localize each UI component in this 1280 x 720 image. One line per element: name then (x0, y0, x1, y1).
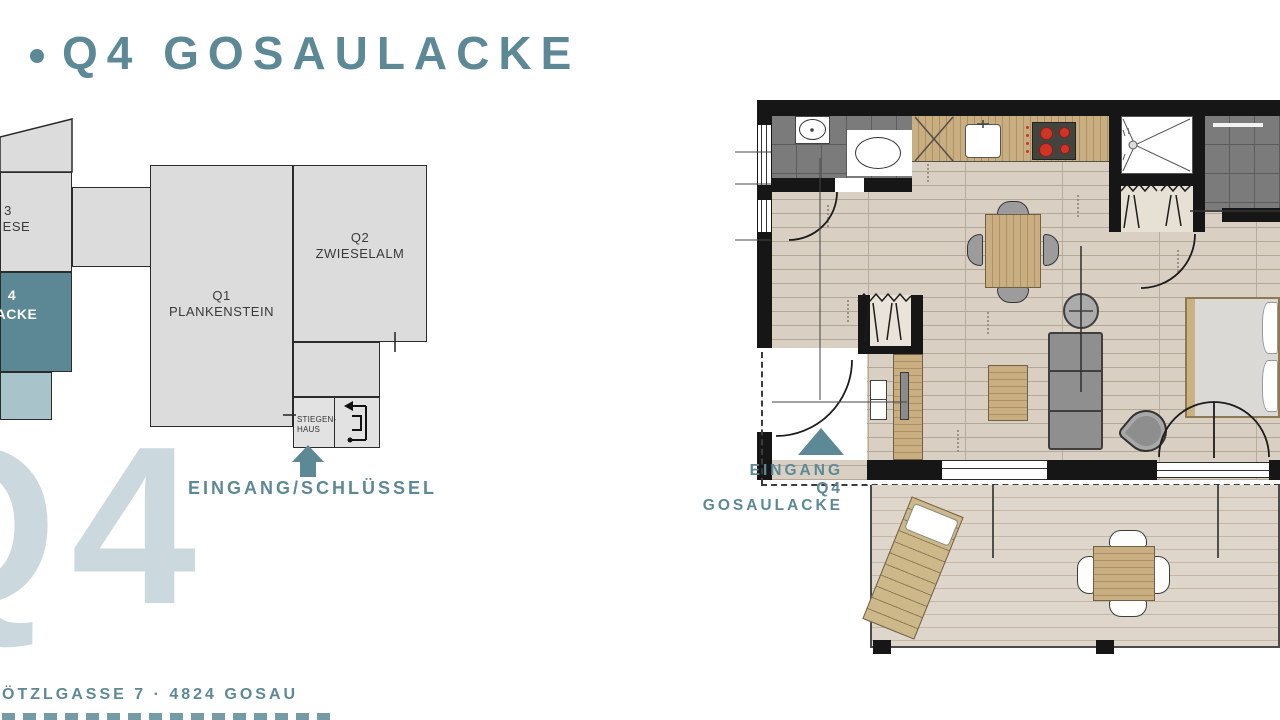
roof-support-lines (993, 484, 1218, 558)
plan-entrance-label: EINGANG Q4 GOSAULACKE (643, 462, 843, 515)
entry-door-arc (776, 360, 852, 436)
dimension-ticks (735, 152, 771, 240)
title-bullet-icon (30, 49, 44, 63)
bathroom-door-arc (789, 192, 837, 240)
minimap-overlay-graphics (0, 100, 470, 520)
footer-address: ÖTZLGASSE 7 · 4824 GOSAU (2, 686, 298, 704)
entrance-arrow-icon (798, 428, 844, 455)
wardrobe-hanger-symbols (858, 184, 1191, 342)
shower-symbol (1123, 119, 1190, 171)
floorplan-page: Q4 GOSAULACKE Q4 3WIESE 4LACKE Q1PLANKEN… (0, 0, 1280, 720)
plan-overlay-graphics (757, 100, 1280, 660)
sink-faucet-icon (977, 120, 989, 128)
page-title: Q4 GOSAULACKE (62, 26, 580, 80)
site-minimap: 3WIESE 4LACKE Q1PLANKENSTEIN Q2ZWIESELAL… (0, 100, 470, 520)
french-doors (1159, 402, 1269, 458)
fixture-cross (1069, 299, 1093, 323)
minimap-entrance-arrow-icon (292, 445, 324, 477)
minimap-dimension-ticks (283, 332, 395, 415)
basin-drain-dot (810, 128, 814, 132)
bedroom-door-arc (1141, 234, 1195, 288)
floorplan: EINGANG Q4 GOSAULACKE (757, 100, 1280, 660)
section-lines (772, 158, 907, 402)
minimap-stair-icon (344, 401, 366, 443)
minimap-entrance-key-label: EINGANG/SCHLÜSSEL (160, 478, 465, 499)
minimap-roof-shape (0, 119, 72, 172)
kitchen-cabinet-cross (915, 117, 953, 161)
footer-second-line-clipped (2, 713, 332, 720)
